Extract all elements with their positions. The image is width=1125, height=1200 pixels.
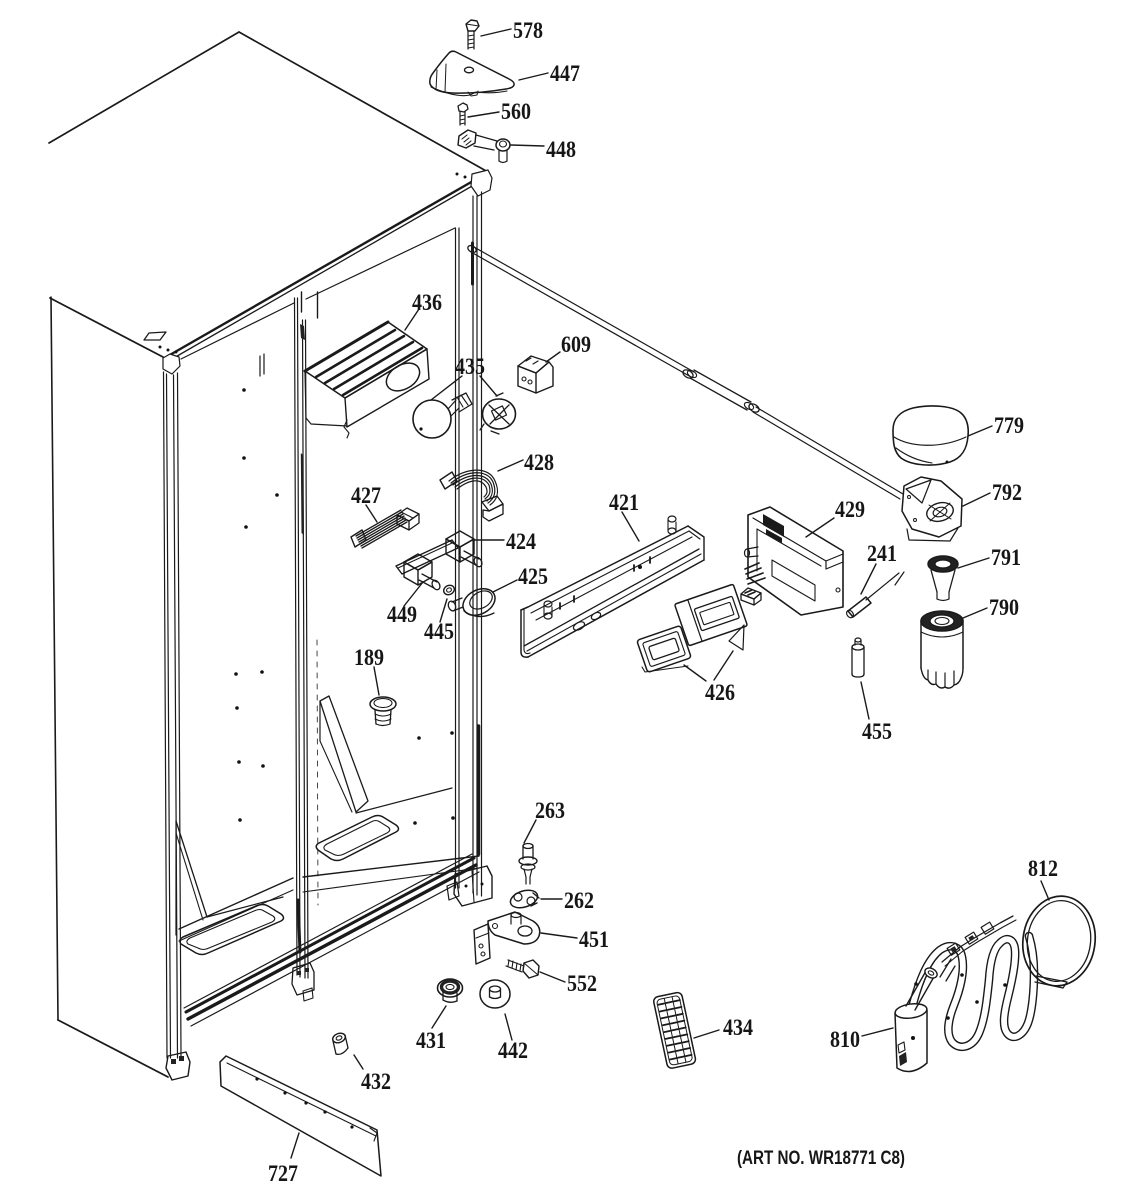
svg-text:434: 434 xyxy=(723,1015,753,1040)
svg-text:427: 427 xyxy=(351,483,381,508)
svg-text:609: 609 xyxy=(561,332,591,357)
svg-text:424: 424 xyxy=(506,529,536,554)
svg-text:262: 262 xyxy=(564,888,594,913)
svg-text:425: 425 xyxy=(518,564,548,589)
svg-text:429: 429 xyxy=(835,497,865,522)
svg-text:241: 241 xyxy=(867,541,897,566)
svg-text:431: 431 xyxy=(416,1028,446,1053)
svg-text:189: 189 xyxy=(354,645,384,670)
svg-text:455: 455 xyxy=(862,719,892,744)
svg-text:552: 552 xyxy=(567,971,597,996)
svg-text:445: 445 xyxy=(424,619,454,644)
svg-text:791: 791 xyxy=(991,545,1021,570)
svg-text:560: 560 xyxy=(501,99,531,124)
svg-text:426: 426 xyxy=(705,680,735,705)
svg-text:779: 779 xyxy=(994,413,1024,438)
svg-text:810: 810 xyxy=(830,1027,860,1052)
svg-text:449: 449 xyxy=(387,602,417,627)
svg-text:812: 812 xyxy=(1028,856,1058,881)
svg-text:578: 578 xyxy=(513,18,543,43)
svg-text:421: 421 xyxy=(609,490,639,515)
svg-text:727: 727 xyxy=(268,1161,298,1186)
svg-text:792: 792 xyxy=(992,480,1022,505)
svg-text:435: 435 xyxy=(455,354,485,379)
svg-text:442: 442 xyxy=(498,1038,528,1063)
svg-text:447: 447 xyxy=(550,61,580,86)
svg-text:263: 263 xyxy=(535,798,565,823)
svg-text:428: 428 xyxy=(524,450,554,475)
svg-text:451: 451 xyxy=(579,927,609,952)
svg-text:(ART NO. WR18771 C8): (ART NO. WR18771 C8) xyxy=(737,1148,905,1169)
svg-text:448: 448 xyxy=(546,137,576,162)
svg-text:436: 436 xyxy=(412,290,442,315)
svg-text:432: 432 xyxy=(361,1069,391,1094)
svg-text:790: 790 xyxy=(989,595,1019,620)
